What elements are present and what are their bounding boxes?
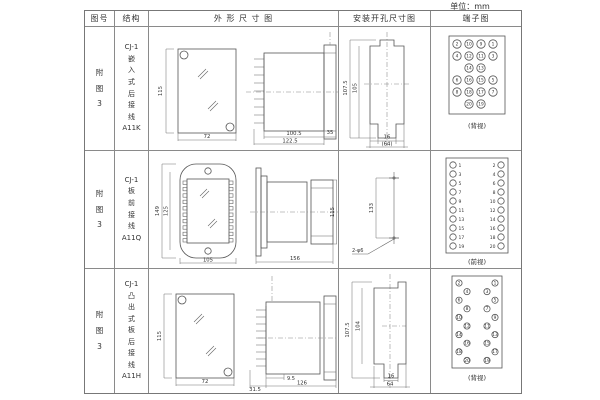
side-view: 156 115 [250, 168, 338, 264]
dim-slot-w: 16 [383, 134, 390, 140]
document-page: 单位：mm 图号 结构 外 形 尺 寸 图 安装开孔尺寸图 端子图 附 图 3 … [0, 0, 600, 400]
terminal-number: 15 [484, 341, 490, 347]
hole-label: 2-φ6 [352, 248, 363, 254]
terminal-number: 14 [490, 216, 496, 222]
terminal-number: 16 [466, 77, 472, 83]
terminal-number: 12 [490, 207, 496, 213]
terminal-number: 11 [478, 53, 484, 59]
col-header-structure: 结构 [115, 11, 149, 27]
dim-side-h: 115 [330, 206, 336, 216]
install-drawing-a11q: 133 2-φ6 [340, 152, 430, 268]
terminal-cell-row1: 2 10 9 1 4 12 11 3 14 13 6 16 15 5 8 18 [431, 27, 521, 151]
outline-drawing-a11k: 115 72 100.5 122.5 35 [150, 29, 338, 149]
dim-overall-w: 64 [386, 382, 393, 388]
terminal-number: 11 [459, 207, 465, 213]
terminal-number: 15 [459, 225, 465, 231]
terminal-number: 2 [456, 41, 459, 47]
terminal-number: 17 [459, 234, 465, 240]
terminal-number: 17 [492, 349, 498, 355]
terminal-number: 8 [466, 306, 469, 312]
terminal-numbers: 1 3 5 7 9 11 13 15 17 19 2 4 6 8 10 12 1 [459, 162, 496, 249]
terminal-number: 16 [464, 341, 470, 347]
dim-front-h: 149 [155, 205, 161, 215]
terminal-number: 15 [478, 77, 484, 83]
terminal-caption: (背视) [468, 373, 486, 382]
install-cell-row1: 107.5 105 16 (64) [339, 27, 431, 151]
front-view: 115 72 [157, 294, 234, 386]
install-cell-row2: 133 2-φ6 [339, 151, 431, 269]
terminal-number: 16 [490, 225, 496, 231]
dim-outer-h: 107.5 [343, 80, 349, 95]
dim-front-h: 115 [158, 85, 164, 95]
terminal-diagram-a11q: 1 3 5 7 9 11 13 15 17 19 2 4 6 8 10 12 1 [432, 152, 520, 268]
terminal-number: 10 [466, 41, 472, 47]
terminal-number: 1 [459, 162, 462, 168]
outline-cell-row2: 149 125 105 156 115 [149, 151, 339, 269]
install-drawing-a11k: 107.5 105 16 (64) [340, 28, 430, 150]
dim-inner-h: 105 [352, 82, 358, 92]
terminal-number: 1 [492, 41, 495, 47]
terminal-number: 5 [494, 298, 497, 304]
install-cell-row3: 107.5 104 16 64 [339, 269, 431, 393]
figure-no-row2: 附 图 3 [85, 151, 115, 269]
terminal-number: 12 [464, 323, 470, 329]
terminal-number: 14 [466, 65, 472, 71]
terminal-number: 7 [459, 189, 462, 195]
terminal-number: 18 [456, 349, 462, 355]
terminal-number: 12 [466, 53, 472, 59]
dim-front-w: 105 [202, 257, 212, 263]
outline-cell-row1: 115 72 100.5 122.5 35 [149, 27, 339, 151]
terminal-number: 3 [492, 53, 495, 59]
terminal-number: 18 [466, 89, 472, 95]
terminal-numbers: 2 4 6 8 10 12 14 16 18 20 1 3 5 7 9 11 1 [456, 280, 498, 363]
figure-no-row3: 附 图 3 [85, 269, 115, 393]
dim-side-b: 9.5 [287, 376, 295, 382]
terminal-number: 3 [486, 289, 489, 295]
col-header-figure: 图号 [85, 11, 115, 27]
terminal-number: 5 [492, 77, 495, 83]
dim-front-w: 72 [201, 379, 208, 385]
col-header-terminal: 端子图 [431, 11, 521, 27]
terminal-number: 18 [490, 234, 496, 240]
dim-side-a: 100.5 [286, 131, 301, 137]
terminal-number: 11 [484, 323, 490, 329]
col-header-install: 安装开孔尺寸图 [339, 11, 431, 27]
outline-drawing-a11q: 149 125 105 156 115 [150, 152, 338, 268]
terminal-numbers: 2 10 9 1 4 12 11 3 14 13 6 16 15 5 8 18 [456, 41, 495, 107]
terminal-number: 17 [478, 89, 484, 95]
front-view: 115 72 [158, 49, 236, 141]
terminal-number: 9 [459, 198, 462, 204]
dim-front-w: 72 [203, 134, 210, 140]
terminal-number: 4 [493, 171, 496, 177]
terminal-number: 8 [493, 189, 496, 195]
terminal-cell-row2: 1 3 5 7 9 11 13 15 17 19 2 4 6 8 10 12 1 [431, 151, 521, 269]
terminal-number: 20 [490, 243, 496, 249]
terminal-cell-row3: 2 4 6 8 10 12 14 16 18 20 1 3 5 7 9 11 1 [431, 269, 521, 393]
terminal-number: 10 [490, 198, 496, 204]
terminal-number: 1 [494, 280, 497, 286]
dim-front-h: 115 [157, 331, 163, 341]
terminal-number: 13 [459, 216, 465, 222]
dim-slot-w: 16 [387, 374, 394, 380]
terminal-number: 13 [492, 332, 498, 338]
structure-row2: CJ-1 板 前 接 线 A11Q [115, 151, 149, 269]
terminal-number: 20 [464, 358, 470, 364]
side-view: 9.5 31.5 126 [249, 276, 338, 392]
terminal-caption: (前视) [468, 257, 486, 266]
outline-cell-row3: 115 72 9.5 31.5 126 [149, 269, 339, 393]
dim-side-c: 126 [296, 381, 307, 387]
terminal-number: 6 [493, 180, 496, 186]
dim-side-c: 35 [326, 130, 333, 136]
terminal-diagram-a11k: 2 10 9 1 4 12 11 3 14 13 6 16 15 5 8 18 [432, 28, 520, 150]
terminal-pins [453, 39, 497, 107]
figure-no-row1: 附 图 3 [85, 27, 115, 151]
dim-outer-h: 107.5 [345, 322, 351, 337]
structure-row1: CJ-1 嵌 入 式 后 接 线 A11K [115, 27, 149, 151]
dim-side-w: 156 [289, 256, 300, 262]
terminal-diagram-a11h: 2 4 6 8 10 12 14 16 18 20 1 3 5 7 9 11 1 [432, 270, 520, 392]
terminal-number: 4 [466, 289, 469, 295]
terminal-number: 8 [456, 89, 459, 95]
terminal-number: 9 [494, 315, 497, 321]
terminal-number: 19 [478, 101, 484, 107]
terminal-number: 13 [478, 65, 484, 71]
dimension-table: 图号 结构 外 形 尺 寸 图 安装开孔尺寸图 端子图 附 图 3 CJ-1 嵌… [84, 10, 522, 394]
terminal-number: 14 [456, 332, 462, 338]
dim-overall-w: (64) [381, 141, 392, 147]
outline-drawing-a11h: 115 72 9.5 31.5 126 [150, 270, 338, 392]
terminal-number: 19 [484, 358, 490, 364]
terminal-number: 7 [492, 89, 495, 95]
front-view: 149 125 105 [155, 164, 236, 264]
terminal-number: 19 [459, 243, 465, 249]
side-view: 100.5 122.5 35 [246, 32, 338, 145]
terminal-number: 5 [459, 180, 462, 186]
terminal-number: 3 [459, 171, 462, 177]
terminal-number: 6 [458, 298, 461, 304]
dim-front-h2: 125 [163, 205, 169, 215]
terminal-number: 4 [456, 53, 459, 59]
dim-side-a: 31.5 [249, 387, 261, 392]
terminal-number: 6 [456, 77, 459, 83]
col-header-outline: 外 形 尺 寸 图 [149, 11, 339, 27]
terminal-number: 2 [458, 280, 461, 286]
structure-row3: CJ-1 凸 出 式 板 后 接 线 A11H [115, 269, 149, 393]
terminal-number: 20 [466, 101, 472, 107]
terminal-caption: (背视) [468, 121, 486, 130]
dim-side-b: 122.5 [282, 138, 297, 144]
terminal-number: 2 [493, 162, 496, 168]
terminal-number: 9 [480, 41, 483, 47]
dim-height: 133 [369, 202, 375, 212]
terminal-number: 10 [456, 315, 462, 321]
dim-inner-h: 104 [355, 320, 361, 331]
terminal-number: 7 [486, 306, 489, 312]
install-drawing-a11h: 107.5 104 16 64 [340, 270, 430, 392]
